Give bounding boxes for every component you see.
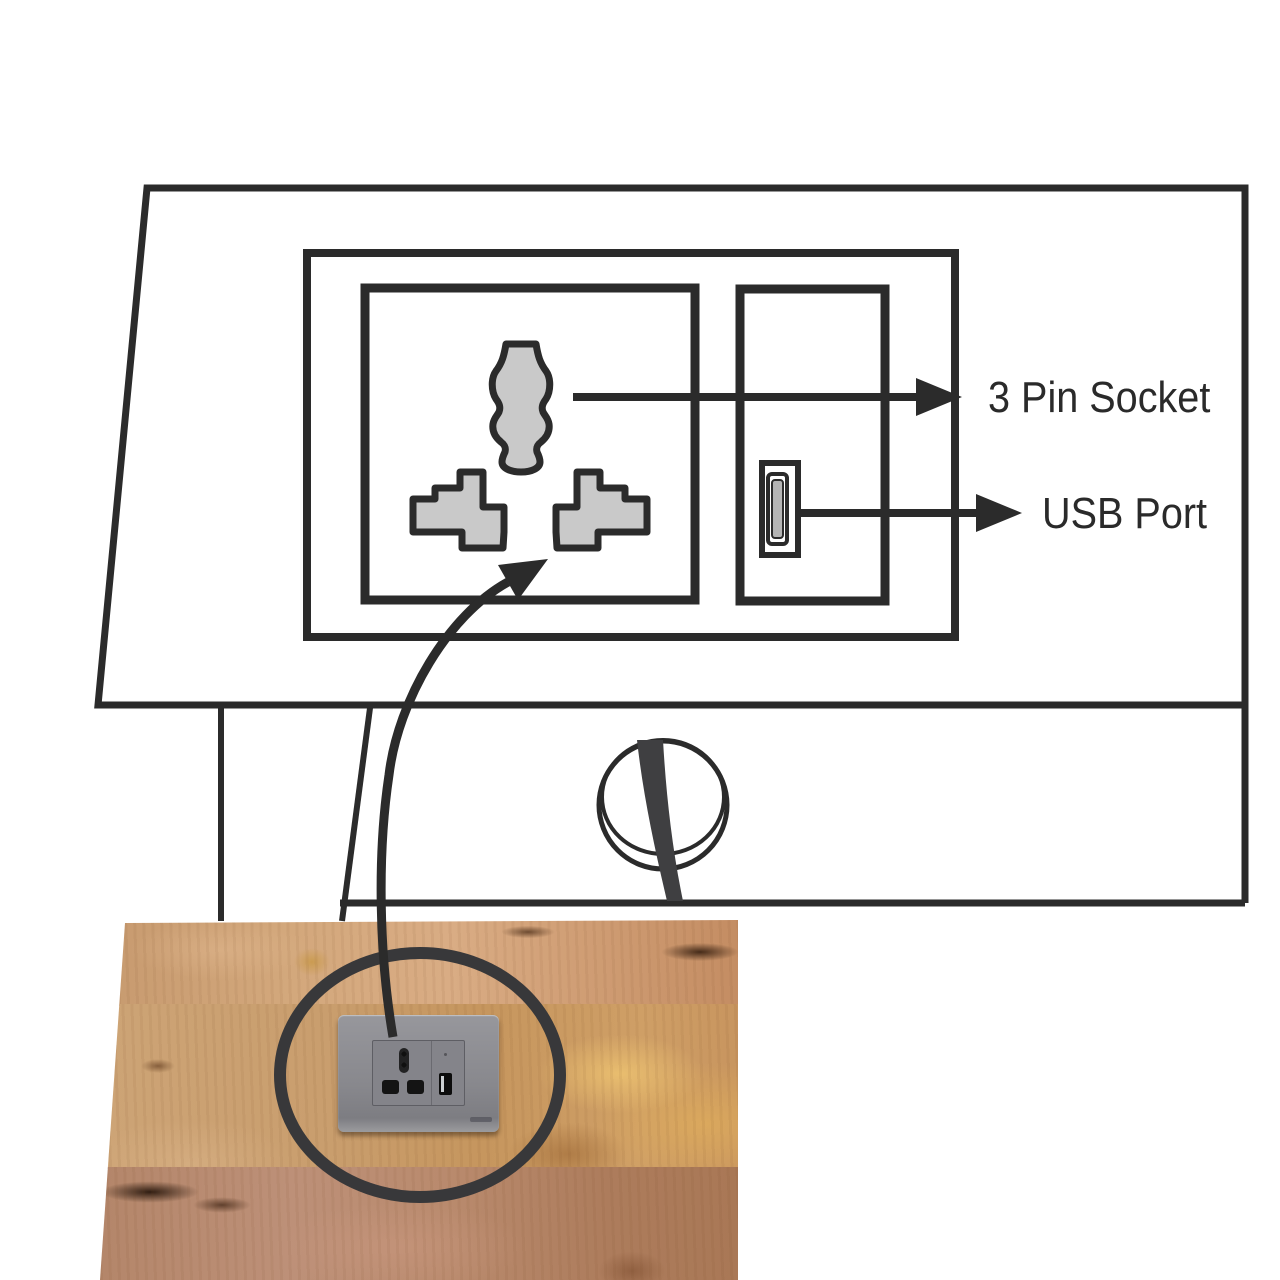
right-pin-hole [556, 472, 647, 548]
photo-left-pin-hole [382, 1080, 399, 1094]
faceplate-outline [307, 253, 955, 637]
wood-plank-bottom [100, 1167, 738, 1280]
cable [637, 740, 683, 901]
photo-led-dot [444, 1053, 447, 1056]
earth-pin-hole [492, 344, 550, 472]
wood-grain [100, 1167, 738, 1280]
usb-outer [762, 463, 798, 555]
photo-3pin-socket [373, 1041, 432, 1105]
photo-right-pin-hole [407, 1080, 424, 1094]
photo-socket-recess [372, 1040, 465, 1106]
label-usb-port: USB Port [1042, 489, 1207, 539]
usb-port-arrowhead [976, 494, 1022, 532]
left-pin-hole [413, 472, 504, 548]
table-apron [221, 705, 1245, 921]
label-3-pin-socket: 3 Pin Socket [988, 373, 1210, 423]
infographic-stage: 3 Pin Socket USB Port [0, 0, 1280, 1280]
usb-inner [768, 474, 787, 544]
photo-earth-pin-hole [399, 1048, 409, 1073]
photo-socket-plate [338, 1015, 499, 1132]
callout-arrowhead [498, 559, 548, 600]
usb-tongue [772, 480, 783, 538]
desk-panel-outline [98, 188, 1245, 705]
cable-grommet-icon [599, 740, 727, 901]
usb-window [740, 289, 885, 601]
grommet-rim [602, 740, 724, 854]
three-pin-socket-icon [413, 344, 647, 548]
wood-plank-top [100, 920, 738, 1004]
photo-usb-port [439, 1073, 452, 1095]
grommet-hole [599, 741, 727, 869]
photo-usb-section [432, 1041, 464, 1105]
apron-slant-edge [342, 708, 370, 921]
usb-port-icon [762, 463, 798, 555]
pin-socket-arrow [573, 378, 962, 416]
pin-socket-arrowhead [916, 378, 962, 416]
socket-window [365, 288, 695, 600]
usb-port-arrow [798, 494, 1022, 532]
photo-plate-logo [470, 1117, 492, 1122]
wood-grain [100, 920, 738, 1004]
table-photo [100, 920, 738, 1280]
